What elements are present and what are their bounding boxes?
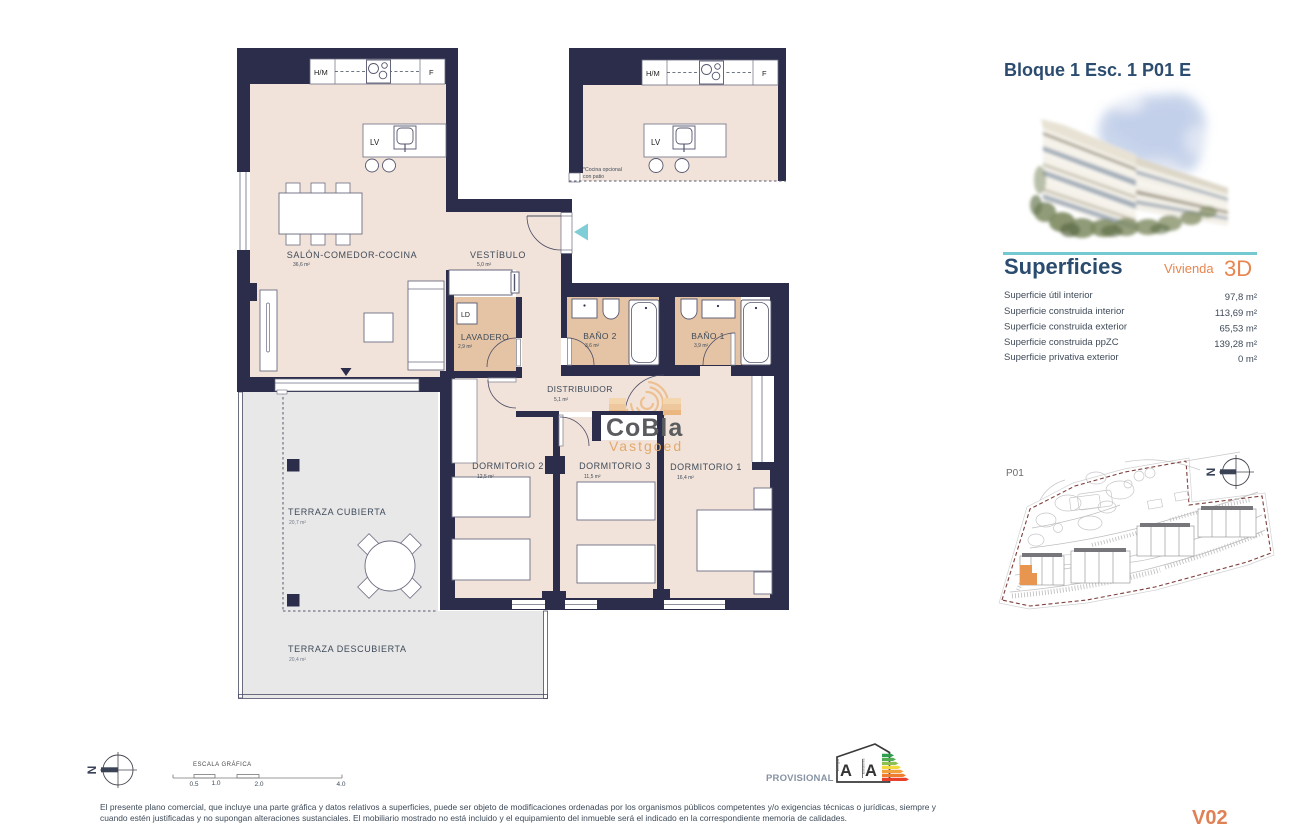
svg-text:El presente plano comercial, q: El presente plano comercial, que incluye… xyxy=(100,803,937,812)
svg-text:20,4 m²: 20,4 m² xyxy=(289,657,306,663)
svg-text:12,5 m²: 12,5 m² xyxy=(477,474,494,480)
svg-text:0.5: 0.5 xyxy=(189,781,198,788)
svg-text:TERRAZA CUBIERTA: TERRAZA CUBIERTA xyxy=(288,507,386,517)
svg-text:Vivienda: Vivienda xyxy=(1164,261,1214,276)
svg-text:DORMITORIO 3: DORMITORIO 3 xyxy=(579,461,651,471)
svg-text:LAVADERO: LAVADERO xyxy=(461,332,509,342)
svg-text:DORMITORIO 1: DORMITORIO 1 xyxy=(670,462,742,472)
svg-text:5,0 m²: 5,0 m² xyxy=(477,262,492,268)
svg-text:SALÓN-COMEDOR-COCINA: SALÓN-COMEDOR-COCINA xyxy=(287,250,418,260)
svg-text:P01: P01 xyxy=(1006,468,1024,479)
svg-text:N: N xyxy=(1204,468,1218,477)
svg-text:11,5 m²: 11,5 m² xyxy=(584,474,601,480)
svg-text:Superficie construida ppZC: Superficie construida ppZC xyxy=(1004,337,1119,348)
svg-text:36,6 m²: 36,6 m² xyxy=(293,262,310,268)
svg-text:5,1 m²: 5,1 m² xyxy=(554,397,569,403)
svg-text:Vastgoed: Vastgoed xyxy=(609,438,683,454)
svg-text:1.0: 1.0 xyxy=(211,780,220,787)
svg-text:2.0: 2.0 xyxy=(254,781,263,788)
svg-text:DORMITORIO 2: DORMITORIO 2 xyxy=(472,461,544,471)
svg-text:Energía: Energía xyxy=(836,759,840,771)
svg-text:cuando estén justificadas y no: cuando estén justificadas y no supongan … xyxy=(100,814,847,823)
svg-text:*Cocina opcional: *Cocina opcional xyxy=(583,167,622,173)
svg-text:TERRAZA DESCUBIERTA: TERRAZA DESCUBIERTA xyxy=(288,644,407,654)
svg-text:20,7 m²: 20,7 m² xyxy=(289,520,306,526)
svg-text:113,69 m²: 113,69 m² xyxy=(1215,308,1257,319)
svg-text:139,28 m²: 139,28 m² xyxy=(1214,339,1257,350)
svg-text:LV: LV xyxy=(651,138,661,147)
svg-text:0 m²: 0 m² xyxy=(1238,354,1257,365)
svg-text:4.0: 4.0 xyxy=(336,781,345,788)
svg-text:Superficies: Superficies xyxy=(1004,254,1123,279)
svg-text:LV: LV xyxy=(370,138,380,147)
svg-text:VESTÍBULO: VESTÍBULO xyxy=(470,250,526,260)
svg-text:Superficie construida interior: Superficie construida interior xyxy=(1004,306,1124,317)
svg-text:N: N xyxy=(85,766,99,775)
svg-text:ESCALA GRÁFICA: ESCALA GRÁFICA xyxy=(193,761,252,768)
svg-text:BAÑO 2: BAÑO 2 xyxy=(583,331,617,341)
svg-text:DISTRIBUIDOR: DISTRIBUIDOR xyxy=(547,384,613,394)
svg-text:PROVISIONAL: PROVISIONAL xyxy=(766,773,834,784)
svg-text:65,53 m²: 65,53 m² xyxy=(1220,324,1258,335)
svg-text:BAÑO 1: BAÑO 1 xyxy=(691,331,725,341)
svg-text:A: A xyxy=(840,762,852,780)
svg-text:A: A xyxy=(865,762,877,780)
svg-text:2,9 m²: 2,9 m² xyxy=(458,344,473,350)
svg-text:H/M: H/M xyxy=(646,69,660,78)
svg-text:H/M: H/M xyxy=(314,68,328,77)
svg-text:con patio: con patio xyxy=(583,174,604,180)
svg-text:3,9 m²: 3,9 m² xyxy=(694,343,709,349)
svg-text:V02: V02 xyxy=(1192,807,1228,829)
svg-text:Bloque 1 Esc. 1 P01 E: Bloque 1 Esc. 1 P01 E xyxy=(1004,60,1191,80)
svg-text:Superficie construida exterior: Superficie construida exterior xyxy=(1004,322,1127,333)
svg-text:F: F xyxy=(429,68,434,77)
svg-text:LD: LD xyxy=(461,312,470,319)
svg-text:Emisiones: Emisiones xyxy=(862,758,866,774)
svg-text:Superficie privativa exterior: Superficie privativa exterior xyxy=(1004,352,1119,363)
svg-text:Superficie útil interior: Superficie útil interior xyxy=(1004,290,1093,301)
svg-text:97,8 m²: 97,8 m² xyxy=(1225,292,1257,303)
svg-text:3D: 3D xyxy=(1224,256,1252,281)
svg-text:16,4 m²: 16,4 m² xyxy=(677,475,694,481)
svg-text:F: F xyxy=(762,69,767,78)
svg-text:3,6 m²: 3,6 m² xyxy=(585,343,600,349)
